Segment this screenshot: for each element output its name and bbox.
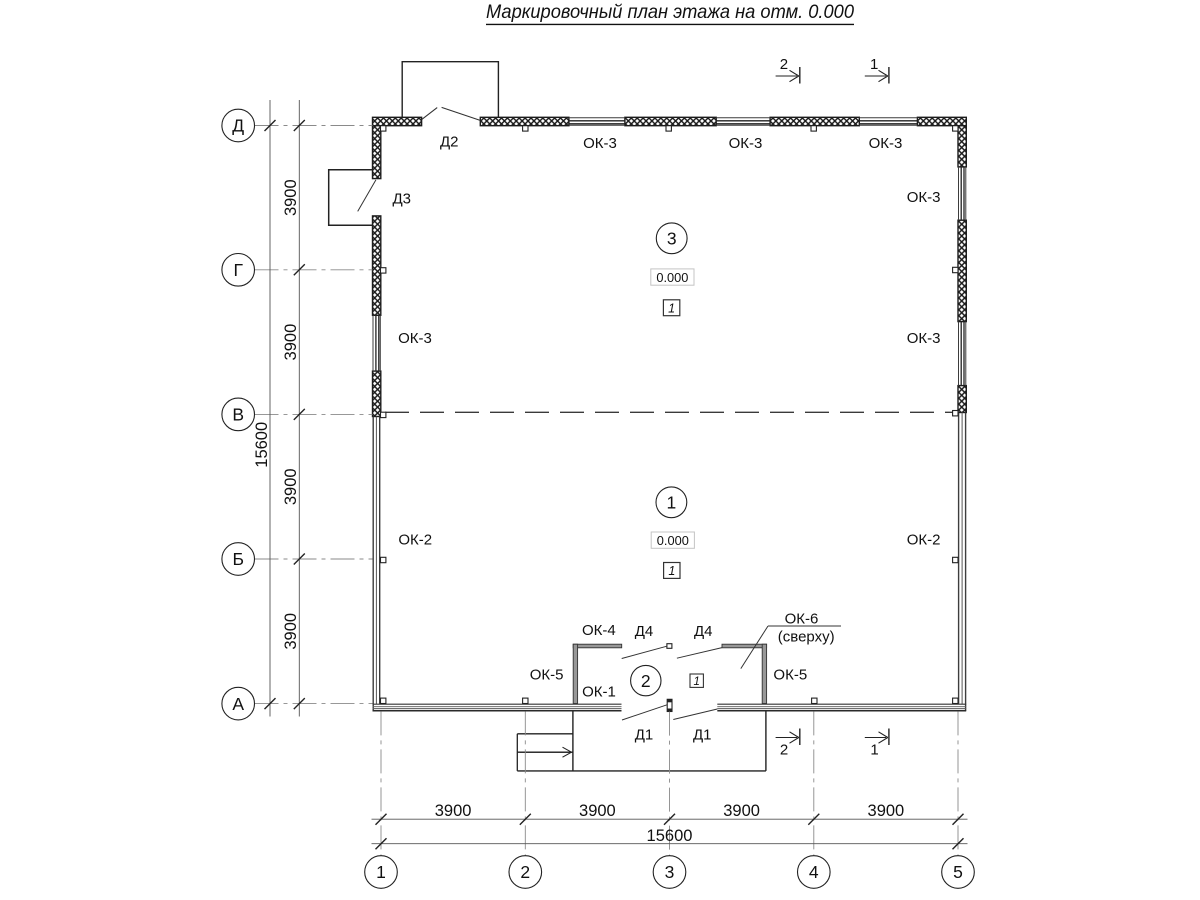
svg-text:3: 3 <box>667 229 677 249</box>
svg-text:ОК-3: ОК-3 <box>907 189 941 206</box>
svg-text:3900: 3900 <box>435 802 472 820</box>
svg-text:Д4: Д4 <box>694 623 713 640</box>
svg-text:Маркировочный план этажа на от: Маркировочный план этажа на отм. 0.000 <box>486 1 854 23</box>
svg-text:1: 1 <box>376 862 386 882</box>
svg-text:3: 3 <box>665 862 675 882</box>
svg-text:1: 1 <box>870 742 878 759</box>
svg-text:Д2: Д2 <box>440 134 459 151</box>
svg-text:ОК-3: ОК-3 <box>583 135 617 152</box>
svg-text:ОК-1: ОК-1 <box>582 684 616 701</box>
svg-text:ОК-2: ОК-2 <box>398 532 432 549</box>
svg-text:3900: 3900 <box>868 802 905 820</box>
svg-text:А: А <box>232 694 244 714</box>
svg-text:0.000: 0.000 <box>657 533 689 548</box>
svg-text:ОК-3: ОК-3 <box>729 135 763 152</box>
svg-text:5: 5 <box>953 862 963 882</box>
svg-text:(сверху): (сверху) <box>778 629 835 646</box>
svg-text:Д1: Д1 <box>693 727 712 744</box>
svg-text:2: 2 <box>520 862 530 882</box>
svg-text:1: 1 <box>870 56 878 73</box>
svg-text:2: 2 <box>780 742 788 759</box>
svg-text:ОК-3: ОК-3 <box>398 330 432 347</box>
svg-text:0.000: 0.000 <box>656 270 688 285</box>
svg-text:ОК-3: ОК-3 <box>869 135 903 152</box>
svg-text:3900: 3900 <box>282 324 300 361</box>
svg-text:Г: Г <box>233 260 243 280</box>
svg-text:15600: 15600 <box>647 827 693 845</box>
svg-text:3900: 3900 <box>282 179 300 216</box>
svg-text:3900: 3900 <box>579 802 616 820</box>
svg-text:1: 1 <box>693 676 699 688</box>
svg-text:ОК-5: ОК-5 <box>773 667 807 684</box>
svg-text:Д1: Д1 <box>635 727 654 744</box>
svg-text:ОК-5: ОК-5 <box>530 667 564 684</box>
svg-text:Б: Б <box>232 549 243 569</box>
svg-text:2: 2 <box>780 56 788 73</box>
svg-text:Д4: Д4 <box>635 623 654 640</box>
svg-text:1: 1 <box>668 564 675 578</box>
svg-text:ОК-6: ОК-6 <box>785 610 819 627</box>
svg-text:15600: 15600 <box>253 422 271 468</box>
svg-text:ОК-4: ОК-4 <box>582 622 616 639</box>
svg-text:Д: Д <box>232 116 244 136</box>
svg-text:1: 1 <box>667 493 677 513</box>
svg-text:Д3: Д3 <box>392 190 411 207</box>
svg-text:2: 2 <box>641 671 651 691</box>
svg-text:4: 4 <box>809 862 819 882</box>
svg-text:3900: 3900 <box>282 468 300 505</box>
svg-text:ОК-3: ОК-3 <box>907 330 941 347</box>
svg-text:3900: 3900 <box>282 613 300 650</box>
svg-text:ОК-2: ОК-2 <box>907 532 941 549</box>
svg-text:В: В <box>232 405 244 425</box>
svg-text:1: 1 <box>668 301 675 315</box>
svg-text:3900: 3900 <box>723 802 760 820</box>
